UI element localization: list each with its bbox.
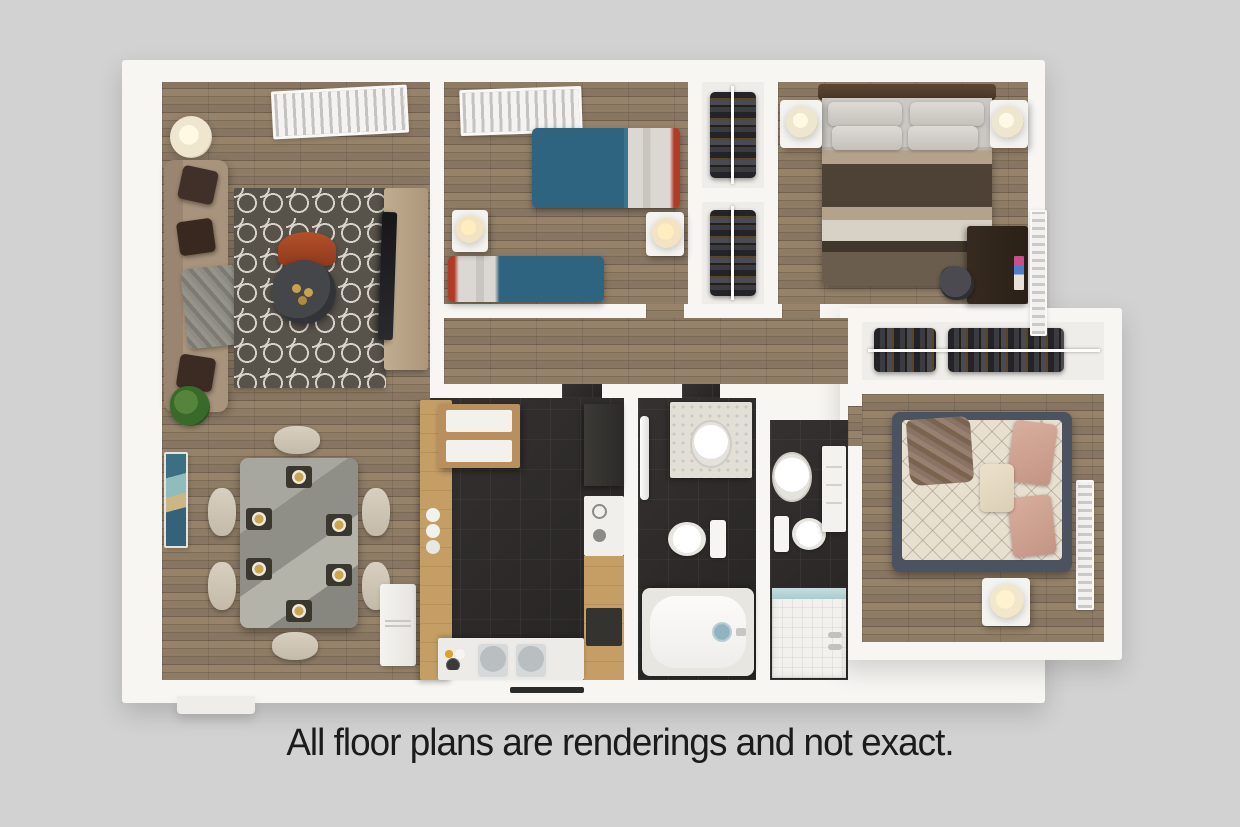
kitchen-tall-cabinet: [584, 404, 624, 486]
table-lamp: [652, 218, 682, 248]
toilet: [774, 516, 828, 552]
disclaimer-caption: All floor plans are renderings and not e…: [19, 722, 1222, 765]
toilet-bowl: [668, 522, 706, 556]
hallway-floor: [444, 318, 848, 384]
ceiling-vent-living: [271, 84, 409, 139]
sink-basin: [476, 642, 510, 679]
bedroom3-bed: [892, 412, 1072, 572]
pedestal-sink: [772, 452, 812, 502]
bathtub: [642, 588, 754, 676]
dining-chair: [272, 632, 318, 660]
entry-stoop: [177, 696, 255, 714]
bed-pillow: [910, 102, 984, 126]
dining-table: [240, 458, 358, 628]
brown-throw: [906, 416, 974, 486]
dining-chair: [208, 488, 236, 536]
shower-glass: [772, 588, 846, 599]
master-door-opening: [782, 304, 820, 318]
dining-chair: [208, 562, 236, 610]
sofa-pillow: [177, 165, 219, 206]
twin-bed: [532, 128, 680, 208]
closet-rail: [868, 349, 1100, 352]
twin-bed: [448, 256, 604, 302]
place-setting: [286, 600, 312, 622]
place-setting: [246, 508, 272, 530]
cream-pillow: [980, 464, 1014, 512]
bedroom3-door-opening: [848, 406, 862, 446]
closet-rail: [731, 206, 734, 300]
stacked-plates: [426, 508, 444, 552]
toilet-bowl: [792, 518, 826, 550]
sink-basin: [514, 642, 548, 679]
shower: [772, 588, 846, 678]
place-setting: [246, 558, 272, 580]
kitchen-window: [510, 687, 584, 693]
closet-rail: [731, 86, 734, 184]
bathtub-faucet: [736, 628, 746, 636]
table-lamp: [786, 106, 818, 138]
vanity-sink: [690, 420, 732, 468]
floor-plan: [122, 60, 1122, 705]
dining-chair: [362, 488, 390, 536]
place-setting: [326, 514, 352, 536]
kitchen-cabinets: [438, 404, 520, 468]
bed-pillow: [832, 126, 902, 150]
refrigerator: [380, 584, 416, 666]
abstract-wall-art: [164, 452, 188, 548]
bathroom1-door-opening: [682, 384, 720, 398]
desk-chair: [940, 266, 974, 300]
table-lamp: [456, 215, 484, 243]
bed-pillow: [908, 126, 978, 150]
floor-plan-image: All floor plans are renderings and not e…: [0, 0, 1240, 827]
bedroom2-door-opening: [646, 304, 684, 318]
towel-bar: [640, 416, 649, 500]
kitchen-door-opening: [562, 384, 602, 398]
toilet-tank: [774, 516, 789, 552]
place-setting: [326, 564, 352, 586]
bathtub-drain: [712, 622, 732, 642]
range-stove: [584, 496, 624, 556]
blush-pillow: [1007, 494, 1057, 558]
table-lamp: [990, 584, 1024, 618]
dishwasher: [586, 608, 622, 646]
sink-counter: [438, 638, 584, 680]
bathroom2-cabinet: [822, 446, 846, 532]
table-lamp: [992, 106, 1024, 138]
sofa-pillow: [176, 218, 216, 257]
wall-vent-bedroom3: [1076, 480, 1094, 610]
shower-fixture: [828, 632, 842, 638]
coffee-table: [272, 260, 336, 324]
floor-lamp: [170, 116, 212, 158]
bathroom1-vanity: [670, 402, 752, 478]
place-setting: [286, 466, 312, 488]
wall-vent-master: [1030, 210, 1047, 336]
counter-items: [444, 648, 470, 670]
potted-plant: [170, 386, 210, 426]
toilet: [668, 520, 726, 558]
bed-pillow: [828, 102, 902, 126]
desk: [967, 226, 1028, 304]
dining-chair: [274, 426, 320, 454]
toilet-tank: [710, 520, 726, 558]
